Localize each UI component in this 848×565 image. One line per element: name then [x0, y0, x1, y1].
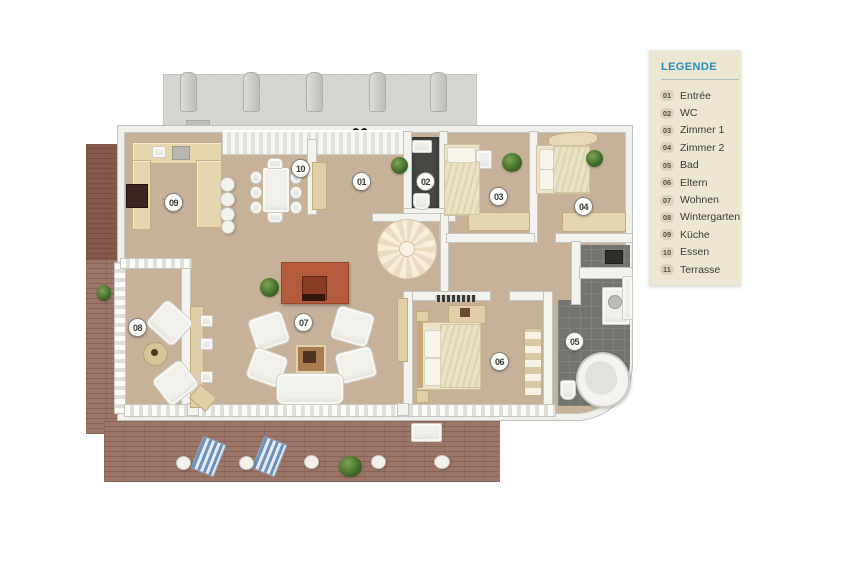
pillow	[424, 330, 441, 358]
wall-eltern-right	[544, 292, 552, 410]
nightstand	[416, 311, 429, 322]
pillow	[539, 149, 554, 170]
legend-row: 07 Wohnen	[649, 191, 741, 208]
side-plant	[97, 285, 111, 301]
headboard	[417, 322, 423, 388]
duvet	[444, 161, 480, 215]
sofa	[276, 373, 344, 405]
vanity-basin	[608, 295, 622, 309]
legend-panel: LEGENDE 01 Entrée 02 WC 03 Zimmer 1 04 Z…	[649, 50, 741, 286]
pillow	[424, 358, 441, 386]
legend-item-number: 02	[660, 108, 674, 119]
wohnen-plant	[260, 278, 279, 297]
legend-item-label: Entrée	[680, 90, 711, 102]
side-stool	[200, 371, 213, 383]
legend-row: 11 Terrasse	[649, 261, 741, 278]
table-decor	[151, 349, 158, 356]
legend-row: 02 WC	[649, 104, 741, 121]
bar-stool	[221, 220, 235, 234]
legend-row: 08 Wintergarten	[649, 209, 741, 226]
legend-row: 09 Küche	[649, 226, 741, 243]
dresser-item	[460, 308, 470, 317]
dining-chair	[250, 186, 262, 199]
room-badge-eltern: 06	[490, 352, 509, 371]
legend-item-label: Terrasse	[680, 264, 720, 276]
legend-item-number: 04	[660, 142, 674, 153]
legend-row: 10 Essen	[649, 244, 741, 261]
legend-title: LEGENDE	[661, 61, 741, 73]
kitchen-counter-right	[196, 160, 222, 228]
balcony-pillar	[369, 72, 386, 112]
wintergarten-glass-wall-left	[114, 262, 126, 414]
legend-item-label: Wintergarten	[680, 211, 740, 223]
dining-chair	[250, 171, 262, 184]
kitchen-appliance	[152, 146, 166, 158]
room-badge-bad: 05	[565, 332, 584, 351]
wc-sink	[412, 140, 432, 153]
planter-pot	[304, 455, 319, 469]
room-badge-entree: 01	[352, 172, 371, 191]
zimmer1-plant	[502, 153, 522, 172]
floorplan-page: 01 02 03 04 05 06 07 08 09 10 LEGENDE 01…	[0, 0, 848, 565]
shower-fixture	[605, 250, 623, 264]
legend-item-label: Küche	[680, 229, 710, 241]
coffee-table-tray	[303, 351, 316, 363]
zimmer2-plant	[586, 150, 603, 167]
legend-divider	[661, 79, 739, 80]
legend-item-number: 10	[660, 247, 674, 258]
legend-item-label: Zimmer 2	[680, 142, 724, 154]
planter-pot	[371, 455, 386, 469]
duvet	[440, 324, 481, 388]
room-badge-kueche: 09	[164, 193, 183, 212]
wall-wc-left	[404, 132, 411, 216]
dining-chair	[267, 212, 283, 223]
kitchen-sink	[172, 146, 190, 160]
dining-chair	[290, 186, 302, 199]
room-badge-zimmer1: 03	[489, 187, 508, 206]
entree-plant	[391, 157, 408, 174]
legend-row: 05 Bad	[649, 157, 741, 174]
room-badge-zimmer2: 04	[574, 197, 593, 216]
hall-cabinet	[397, 298, 408, 362]
balcony-pillar	[243, 72, 260, 112]
duvet	[553, 146, 590, 193]
legend-item-number: 08	[660, 212, 674, 223]
wall-zimmer1-bottom	[447, 234, 534, 242]
room-badge-essen: 10	[291, 159, 310, 178]
bath-toilet	[560, 380, 576, 400]
legend-item-number: 07	[660, 195, 674, 206]
balcony-pillar	[180, 72, 197, 112]
side-stool	[200, 315, 213, 327]
legend-row: 04 Zimmer 2	[649, 139, 741, 156]
wall-zimmer2-bottom	[556, 234, 632, 242]
planter-pot	[434, 455, 450, 469]
room-badge-wc: 02	[416, 172, 435, 191]
firebox-hearth	[302, 294, 325, 301]
terrace-left-dark-patch	[86, 144, 120, 260]
nightstand	[416, 390, 429, 403]
balcony-pillar	[430, 72, 447, 112]
legend-item-number: 11	[660, 264, 674, 275]
legend-row: 06 Eltern	[649, 174, 741, 191]
entree-sideboard	[312, 162, 327, 210]
legend-item-label: Zimmer 1	[680, 124, 724, 136]
pillow	[539, 169, 554, 190]
legend-item-number: 05	[660, 160, 674, 171]
legend-row: 01 Entrée	[649, 87, 741, 104]
dining-chair	[267, 158, 283, 169]
dining-table	[262, 167, 290, 213]
planter-pot	[239, 456, 254, 470]
legend-item-label: Wohnen	[680, 194, 719, 206]
wc-toilet	[413, 193, 430, 210]
legend-item-label: WC	[680, 107, 698, 119]
staircase-center-post	[399, 241, 415, 257]
wall-post	[398, 404, 408, 415]
wall-bath-left	[572, 242, 580, 304]
wall-stair-right	[441, 214, 448, 298]
towel-rack	[622, 276, 633, 320]
planter-pot	[176, 456, 191, 470]
stove	[126, 184, 148, 208]
wintergarten-glass-wall-top	[120, 258, 192, 269]
bar-stool	[220, 192, 235, 207]
legend-item-number: 03	[660, 125, 674, 136]
dining-chair	[290, 201, 302, 214]
legend-row: 03 Zimmer 1	[649, 122, 741, 139]
wall-radiator	[435, 295, 476, 302]
legend-item-number: 01	[660, 90, 674, 101]
balcony-pillar	[306, 72, 323, 112]
dining-chair	[250, 201, 262, 214]
legend-item-number: 09	[660, 229, 674, 240]
legend-item-label: Essen	[680, 246, 709, 258]
pillow	[447, 147, 476, 163]
zimmer2-sideboard	[562, 212, 626, 232]
room-badge-wohnen: 07	[294, 313, 313, 332]
terrace-plant	[339, 456, 362, 477]
room-badge-wintergarten: 08	[128, 318, 147, 337]
legend-item-number: 06	[660, 177, 674, 188]
eltern-wardrobe	[524, 328, 542, 396]
terrace-table	[411, 423, 442, 442]
bar-stool	[220, 177, 235, 192]
side-stool	[200, 338, 213, 350]
legend-item-label: Eltern	[680, 177, 707, 189]
legend-item-label: Bad	[680, 159, 699, 171]
